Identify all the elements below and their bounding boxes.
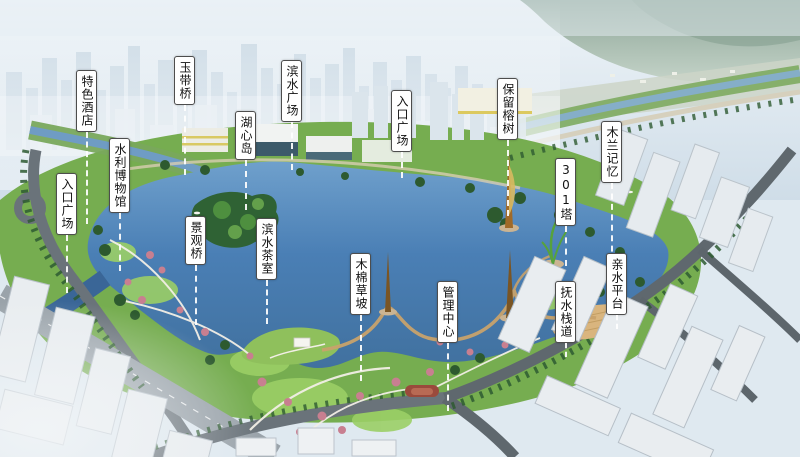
management-center-building xyxy=(405,385,439,397)
tearoom-building xyxy=(294,338,310,347)
yellow-hall xyxy=(458,88,532,114)
buildings-south-center xyxy=(236,428,396,456)
banyan-trees xyxy=(487,207,503,223)
sky-haze xyxy=(0,0,800,36)
masterplan-rendering: 特色酒店 玉带桥 滨水广场 入口广场 保留榕树 木兰记忆 301塔 湖心岛 水利… xyxy=(0,0,800,457)
rendering-artwork xyxy=(0,0,800,457)
exhibition-hall xyxy=(182,128,228,152)
